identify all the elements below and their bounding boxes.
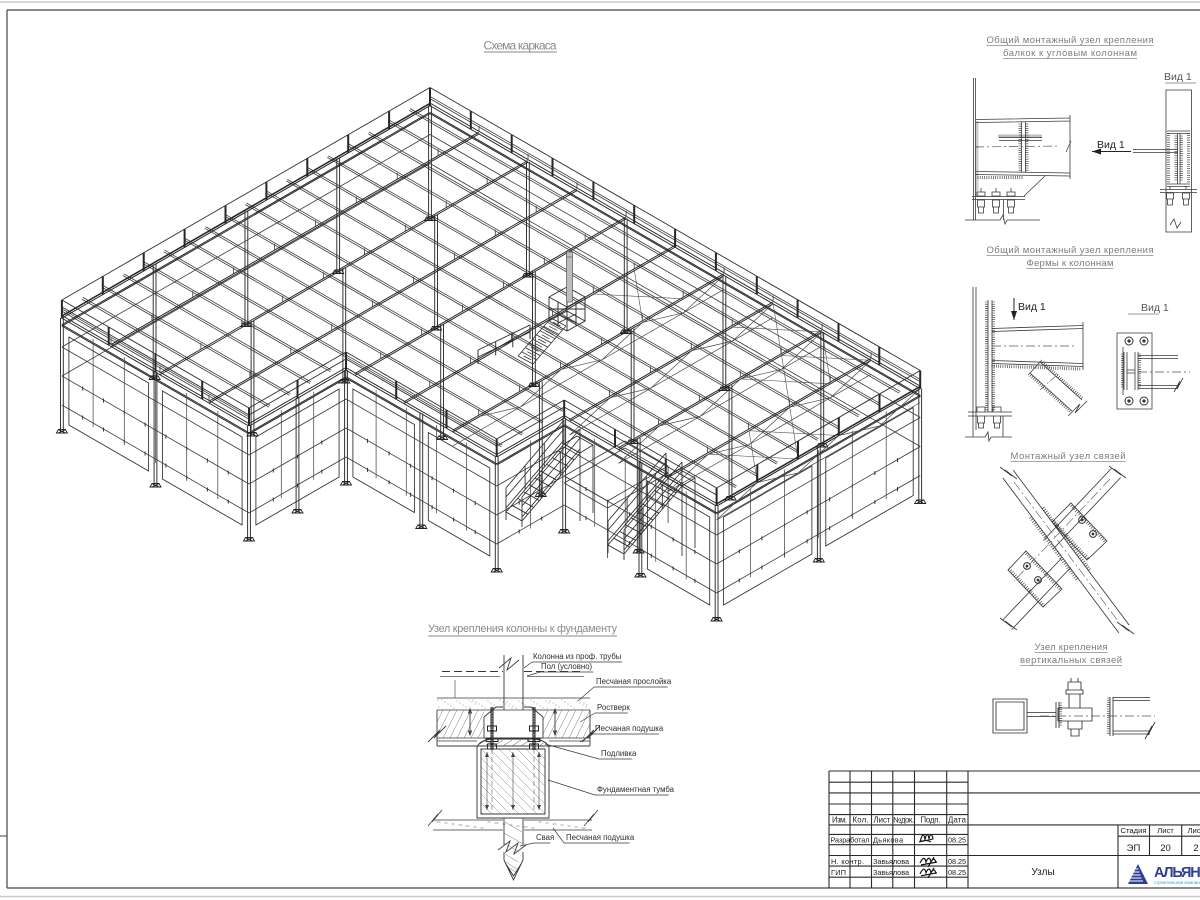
- svg-text:Узел крепления: Узел крепления: [1035, 642, 1108, 653]
- svg-text:Общий монтажный узел крепления: Общий монтажный узел крепления: [987, 35, 1154, 46]
- svg-text:Колонна из проф. трубы: Колонна из проф. трубы: [533, 652, 622, 661]
- svg-text:08.25: 08.25: [948, 868, 966, 877]
- svg-text:Монтажный узел связей: Монтажный узел связей: [1011, 451, 1126, 462]
- svg-text:вертикальных связей: вертикальных связей: [1020, 655, 1122, 666]
- svg-text:Завьялова: Завьялова: [873, 868, 910, 877]
- svg-text:Вид 1: Вид 1: [1164, 71, 1192, 83]
- svg-text:Лист: Лист: [874, 816, 891, 825]
- svg-text:Узлы: Узлы: [1031, 867, 1054, 878]
- svg-text:Разработал: Разработал: [831, 836, 870, 845]
- svg-text:строительная компани: строительная компани: [1154, 880, 1200, 885]
- svg-text:Пол (условно): Пол (условно): [541, 662, 593, 671]
- svg-text:Вид 1: Вид 1: [1097, 139, 1125, 151]
- svg-text:Лис: Лис: [1187, 826, 1200, 835]
- svg-text:Песчаная прослойка: Песчаная прослойка: [596, 677, 672, 686]
- svg-text:Схема каркаса: Схема каркаса: [484, 39, 557, 53]
- svg-text:08.25: 08.25: [948, 836, 966, 845]
- svg-text:Подливка: Подливка: [601, 749, 637, 758]
- svg-text:Изм.: Изм.: [832, 816, 847, 825]
- svg-text:Фундаментная тумба: Фундаментная тумба: [597, 785, 675, 794]
- svg-text:Вид 1: Вид 1: [1141, 302, 1169, 314]
- svg-text:Общий монтажный узел крепления: Общий монтажный узел крепления: [987, 245, 1154, 256]
- svg-text:Вид 1: Вид 1: [1018, 301, 1046, 313]
- svg-text:Дата: Дата: [948, 816, 967, 825]
- svg-text:балкок к угловым колоннам: балкок к угловым колоннам: [1003, 48, 1137, 59]
- svg-text:Узел крепления колонны к фунда: Узел крепления колонны к фундаменту: [428, 623, 618, 635]
- svg-text:Фермы к колоннам: Фермы к колоннам: [1027, 258, 1114, 269]
- svg-text:ГИП: ГИП: [831, 868, 846, 877]
- svg-text:Свая: Свая: [536, 833, 554, 842]
- svg-text:№док.: №док.: [893, 816, 914, 825]
- svg-text:Ростверк: Ростверк: [597, 703, 630, 712]
- svg-text:Лист: Лист: [1157, 826, 1174, 835]
- svg-text:2: 2: [1193, 843, 1198, 854]
- svg-text:Песчаная подушка: Песчаная подушка: [595, 724, 664, 733]
- svg-text:Стадия: Стадия: [1121, 826, 1147, 835]
- svg-text:ЭП: ЭП: [1127, 843, 1141, 854]
- svg-text:Подп.: Подп.: [921, 816, 941, 825]
- svg-text:АЛЬЯНС: АЛЬЯНС: [1154, 865, 1200, 881]
- svg-text:Кол.: Кол.: [853, 816, 869, 825]
- svg-text:Н. контр.: Н. контр.: [831, 857, 864, 866]
- svg-text:Дьякова: Дьякова: [873, 836, 904, 845]
- svg-text:20: 20: [1160, 843, 1171, 854]
- svg-text:Завьялова: Завьялова: [873, 857, 910, 866]
- svg-text:08.25: 08.25: [948, 857, 966, 866]
- svg-text:Песчаная подушка: Песчаная подушка: [566, 833, 635, 842]
